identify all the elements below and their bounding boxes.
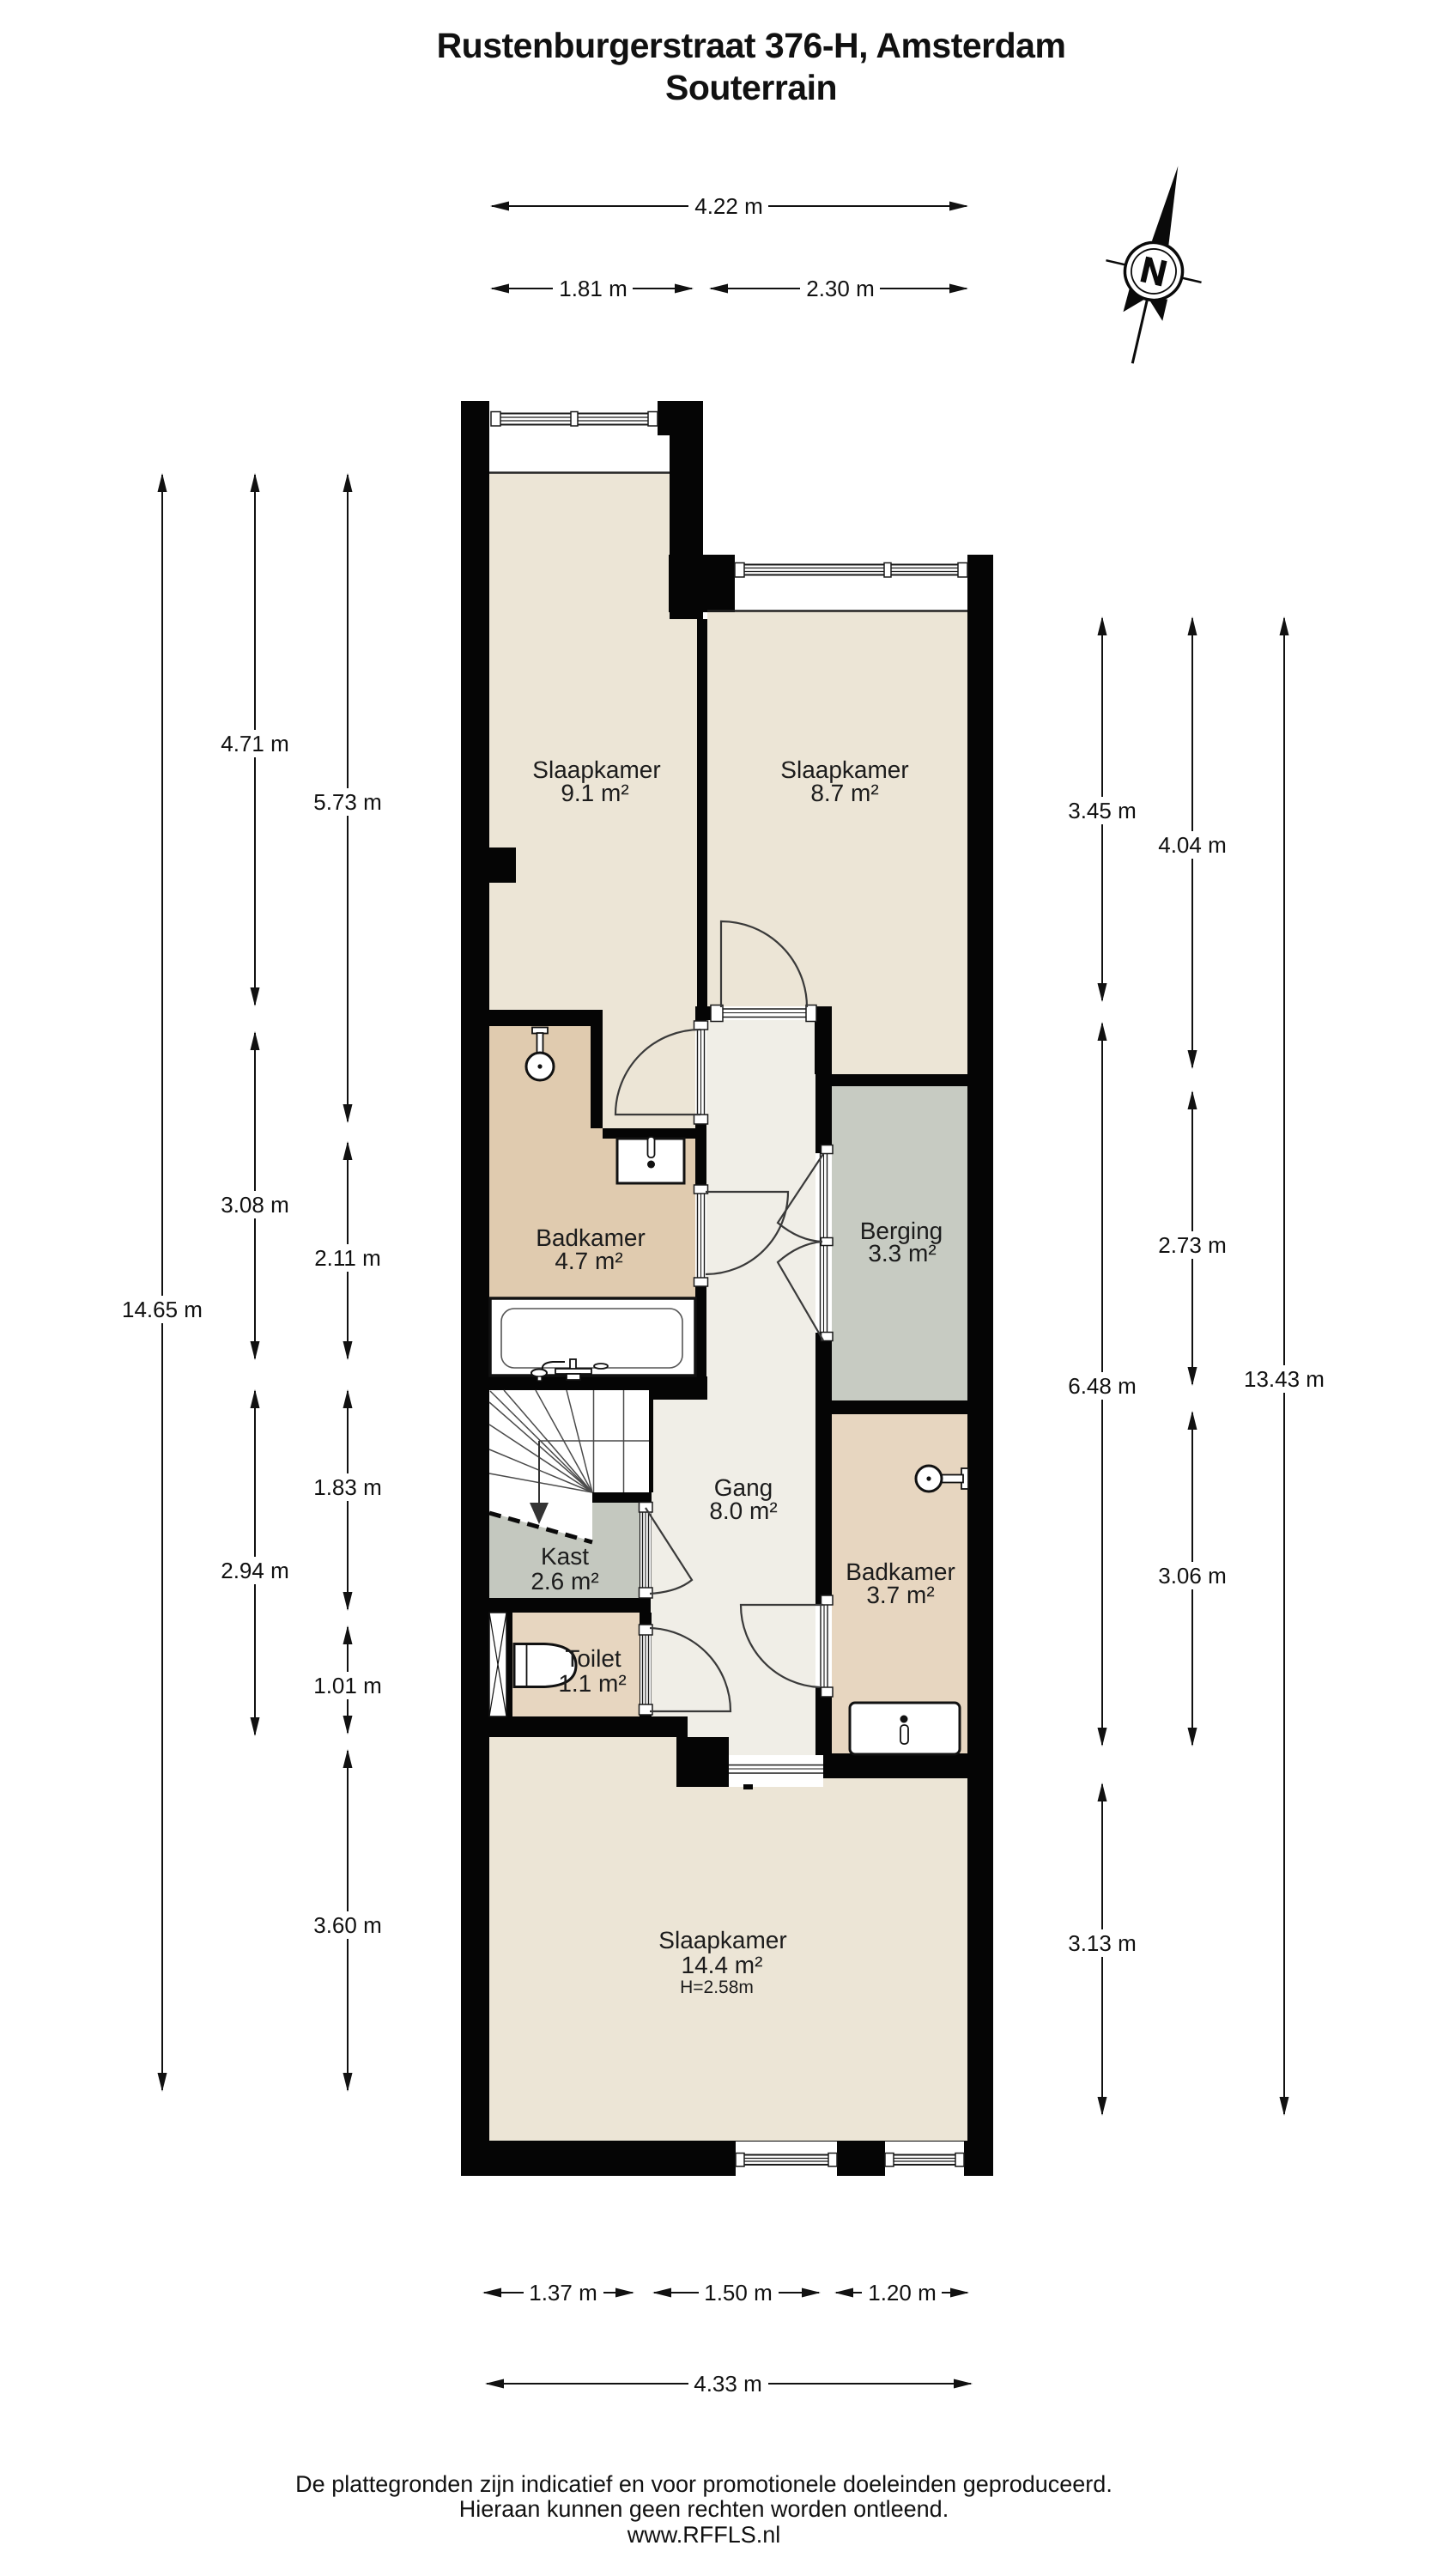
svg-text:3.06 m: 3.06 m <box>1158 1563 1227 1589</box>
svg-text:9.1 m²: 9.1 m² <box>561 780 628 806</box>
svg-text:4.33 m: 4.33 m <box>694 2371 762 2397</box>
svg-text:3.60 m: 3.60 m <box>313 1912 382 1938</box>
svg-text:4.22 m: 4.22 m <box>694 193 763 219</box>
svg-text:H=2.58m: H=2.58m <box>680 1978 754 1997</box>
svg-text:Rustenburgerstraat 376-H, Amst: Rustenburgerstraat 376-H, Amsterdam <box>437 26 1066 65</box>
svg-text:2.11 m: 2.11 m <box>314 1245 381 1271</box>
svg-text:4.7 m²: 4.7 m² <box>555 1248 622 1274</box>
svg-text:3.08 m: 3.08 m <box>221 1192 289 1218</box>
svg-text:Slaapkamer: Slaapkamer <box>658 1927 786 1953</box>
svg-text:5.73 m: 5.73 m <box>313 789 382 815</box>
svg-text:1.81 m: 1.81 m <box>559 276 627 301</box>
svg-text:3.7 m²: 3.7 m² <box>866 1582 934 1608</box>
svg-text:2.73 m: 2.73 m <box>1158 1232 1227 1258</box>
svg-text:13.43 m: 13.43 m <box>1244 1366 1325 1392</box>
svg-text:8.0 m²: 8.0 m² <box>709 1498 777 1524</box>
svg-text:2.30 m: 2.30 m <box>806 276 875 301</box>
svg-text:2.94 m: 2.94 m <box>221 1558 289 1583</box>
svg-text:1.83 m: 1.83 m <box>313 1474 382 1500</box>
svg-text:1.37 m: 1.37 m <box>529 2280 597 2306</box>
svg-text:3.13 m: 3.13 m <box>1068 1930 1137 1956</box>
svg-text:8.7 m²: 8.7 m² <box>810 780 878 806</box>
svg-text:3.3 m²: 3.3 m² <box>868 1240 936 1267</box>
svg-text:Hieraan kunnen geen rechten wo: Hieraan kunnen geen rechten worden ontle… <box>459 2496 949 2522</box>
svg-text:14.65 m: 14.65 m <box>122 1297 203 1322</box>
svg-text:De plattegronden zijn indicati: De plattegronden zijn indicatief en voor… <box>295 2471 1113 2497</box>
svg-text:4.04 m: 4.04 m <box>1158 832 1227 858</box>
svg-text:1.1 m²: 1.1 m² <box>558 1670 626 1697</box>
svg-text:2.6 m²: 2.6 m² <box>530 1568 598 1595</box>
svg-text:Toilet: Toilet <box>565 1645 621 1672</box>
svg-text:3.45 m: 3.45 m <box>1068 798 1137 823</box>
svg-text:1.20 m: 1.20 m <box>868 2280 937 2306</box>
svg-text:Souterrain: Souterrain <box>665 68 837 107</box>
svg-text:www.RFFLS.nl: www.RFFLS.nl <box>627 2522 781 2548</box>
svg-text:1.50 m: 1.50 m <box>704 2280 773 2306</box>
svg-text:14.4 m²: 14.4 m² <box>682 1952 763 1978</box>
svg-text:1.01 m: 1.01 m <box>313 1673 382 1698</box>
svg-text:4.71 m: 4.71 m <box>221 731 289 756</box>
svg-text:6.48 m: 6.48 m <box>1068 1373 1137 1399</box>
svg-text:Kast: Kast <box>541 1543 589 1570</box>
